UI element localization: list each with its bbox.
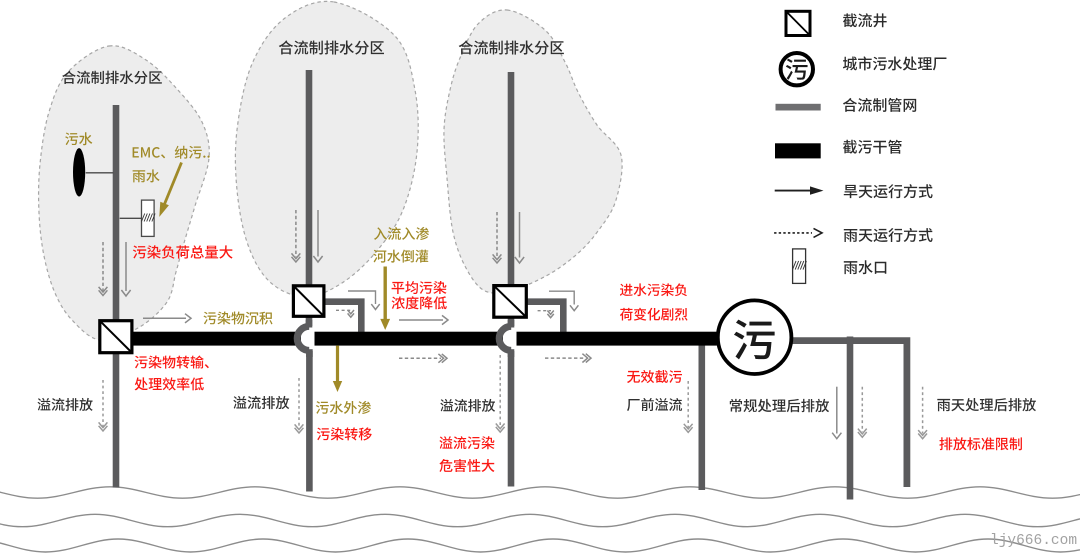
- svg-text:ljy666.com: ljy666.com: [990, 533, 1077, 549]
